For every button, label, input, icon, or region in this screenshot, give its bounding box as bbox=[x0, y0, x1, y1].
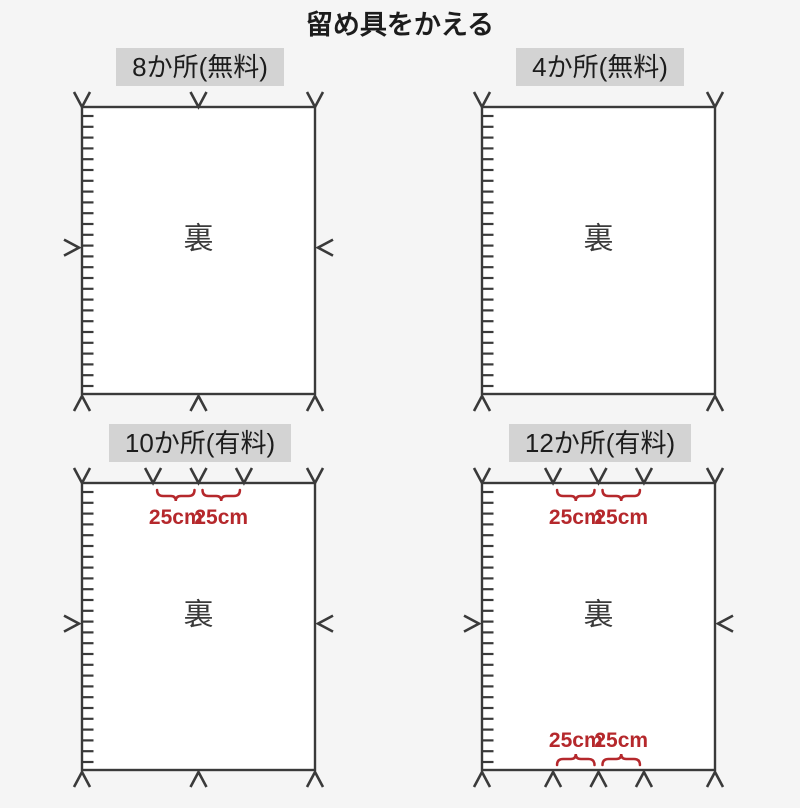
fastener-mark-bottom bbox=[474, 396, 490, 411]
dimension-label: 25cm bbox=[594, 506, 648, 529]
fastener-mark-left bbox=[464, 616, 479, 632]
fastener-mark-left bbox=[64, 616, 79, 632]
fastener-mark-bottom bbox=[74, 396, 90, 411]
fastener-mark-bottom bbox=[307, 772, 323, 787]
panel-4-free: 4か所(無料) 裏 bbox=[400, 42, 800, 418]
fastener-mark-top bbox=[707, 468, 723, 483]
fastener-mark-top bbox=[636, 468, 652, 483]
fastener-mark-top bbox=[236, 468, 252, 483]
fastener-mark-bottom bbox=[707, 772, 723, 787]
back-side-label: 裏 bbox=[184, 223, 214, 256]
panel-10-paid: 10か所(有料) 裏25cm25cm bbox=[0, 418, 400, 798]
fastener-mark-top bbox=[307, 92, 323, 107]
fastener-mark-top bbox=[591, 468, 607, 483]
back-side-label: 裏 bbox=[184, 599, 214, 632]
fastener-mark-top bbox=[74, 92, 90, 107]
panel-8-free: 8か所(無料) 裏 bbox=[0, 42, 400, 418]
dimension-label: 25cm bbox=[194, 506, 248, 529]
fastener-mark-top bbox=[191, 468, 207, 483]
fastener-mark-top bbox=[474, 468, 490, 483]
fastener-mark-bottom bbox=[591, 772, 607, 787]
fastener-mark-bottom bbox=[707, 396, 723, 411]
fastener-diagram-8-free: 裏 bbox=[0, 90, 400, 416]
panel-title-4-free: 4か所(無料) bbox=[516, 48, 684, 86]
panels-grid: 8か所(無料) 裏 4か所(無料) 裏 10か所(有料) 裏25cm25cm 1… bbox=[0, 42, 800, 798]
fastener-mark-top bbox=[307, 468, 323, 483]
fastener-mark-bottom bbox=[191, 396, 207, 411]
fastener-diagram-12-paid: 裏25cm25cm25cm25cm bbox=[400, 466, 800, 792]
fastener-mark-bottom bbox=[307, 396, 323, 411]
fastener-mark-bottom bbox=[636, 772, 652, 787]
back-side-label: 裏 bbox=[584, 223, 614, 256]
dimension-label: 25cm bbox=[594, 729, 648, 752]
fastener-mark-right bbox=[718, 616, 733, 632]
fastener-mark-top bbox=[707, 92, 723, 107]
fastener-mark-top bbox=[74, 468, 90, 483]
fastener-mark-right bbox=[318, 616, 333, 632]
back-side-label: 裏 bbox=[584, 599, 614, 632]
panel-title-8-free: 8か所(無料) bbox=[116, 48, 284, 86]
panel-title-10-paid: 10か所(有料) bbox=[109, 424, 291, 462]
fastener-diagram-4-free: 裏 bbox=[400, 90, 800, 416]
fastener-diagram-10-paid: 裏25cm25cm bbox=[0, 466, 400, 792]
fastener-mark-left bbox=[64, 240, 79, 256]
fastener-mark-top bbox=[545, 468, 561, 483]
fastener-mark-bottom bbox=[474, 772, 490, 787]
fastener-mark-top bbox=[191, 92, 207, 107]
fastener-mark-right bbox=[318, 240, 333, 256]
fastener-mark-bottom bbox=[74, 772, 90, 787]
fastener-mark-top bbox=[145, 468, 161, 483]
fastener-mark-bottom bbox=[545, 772, 561, 787]
panel-title-12-paid: 12か所(有料) bbox=[509, 424, 691, 462]
fastener-mark-top bbox=[474, 92, 490, 107]
panel-12-paid: 12か所(有料) 裏25cm25cm25cm25cm bbox=[400, 418, 800, 798]
fastener-mark-bottom bbox=[191, 772, 207, 787]
page-title: 留め具をかえる bbox=[0, 8, 800, 42]
